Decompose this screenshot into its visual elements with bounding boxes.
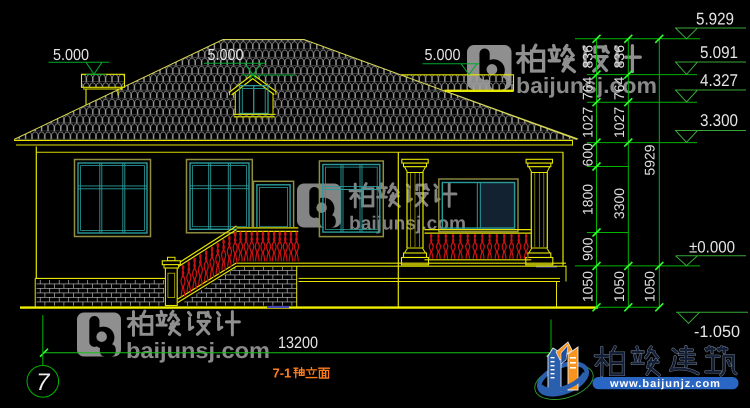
svg-text:3300: 3300 [611, 188, 627, 219]
svg-text:600: 600 [579, 143, 595, 167]
svg-text:-1.050: -1.050 [694, 323, 740, 341]
svg-text:764: 764 [579, 77, 595, 101]
svg-text:900: 900 [579, 237, 595, 261]
svg-text:4.327: 4.327 [700, 71, 738, 90]
svg-text:www.baijunjz.com: www.baijunjz.com [609, 378, 721, 390]
svg-text:836: 836 [611, 45, 627, 69]
svg-text:7: 7 [36, 369, 51, 396]
svg-text:±0.000: ±0.000 [689, 239, 735, 257]
svg-text:5929: 5929 [642, 144, 658, 175]
svg-text:1027: 1027 [579, 107, 595, 138]
svg-text:1800: 1800 [579, 184, 595, 215]
svg-text:3.300: 3.300 [700, 111, 738, 130]
svg-text:5.000: 5.000 [208, 47, 244, 64]
svg-text:764: 764 [611, 77, 627, 101]
svg-text:5.000: 5.000 [53, 47, 89, 64]
svg-text:5.000: 5.000 [425, 47, 461, 64]
svg-text:13200: 13200 [278, 334, 318, 352]
svg-text:5.929: 5.929 [696, 10, 734, 29]
svg-text:7-1: 7-1 [273, 366, 292, 381]
svg-text:836: 836 [579, 45, 595, 69]
svg-text:5.091: 5.091 [700, 43, 738, 62]
svg-text:1027: 1027 [611, 107, 627, 138]
svg-text:baijunsj.com: baijunsj.com [126, 338, 270, 363]
svg-text:1050: 1050 [611, 271, 627, 302]
svg-text:1050: 1050 [579, 271, 595, 302]
svg-text:1050: 1050 [642, 271, 658, 302]
